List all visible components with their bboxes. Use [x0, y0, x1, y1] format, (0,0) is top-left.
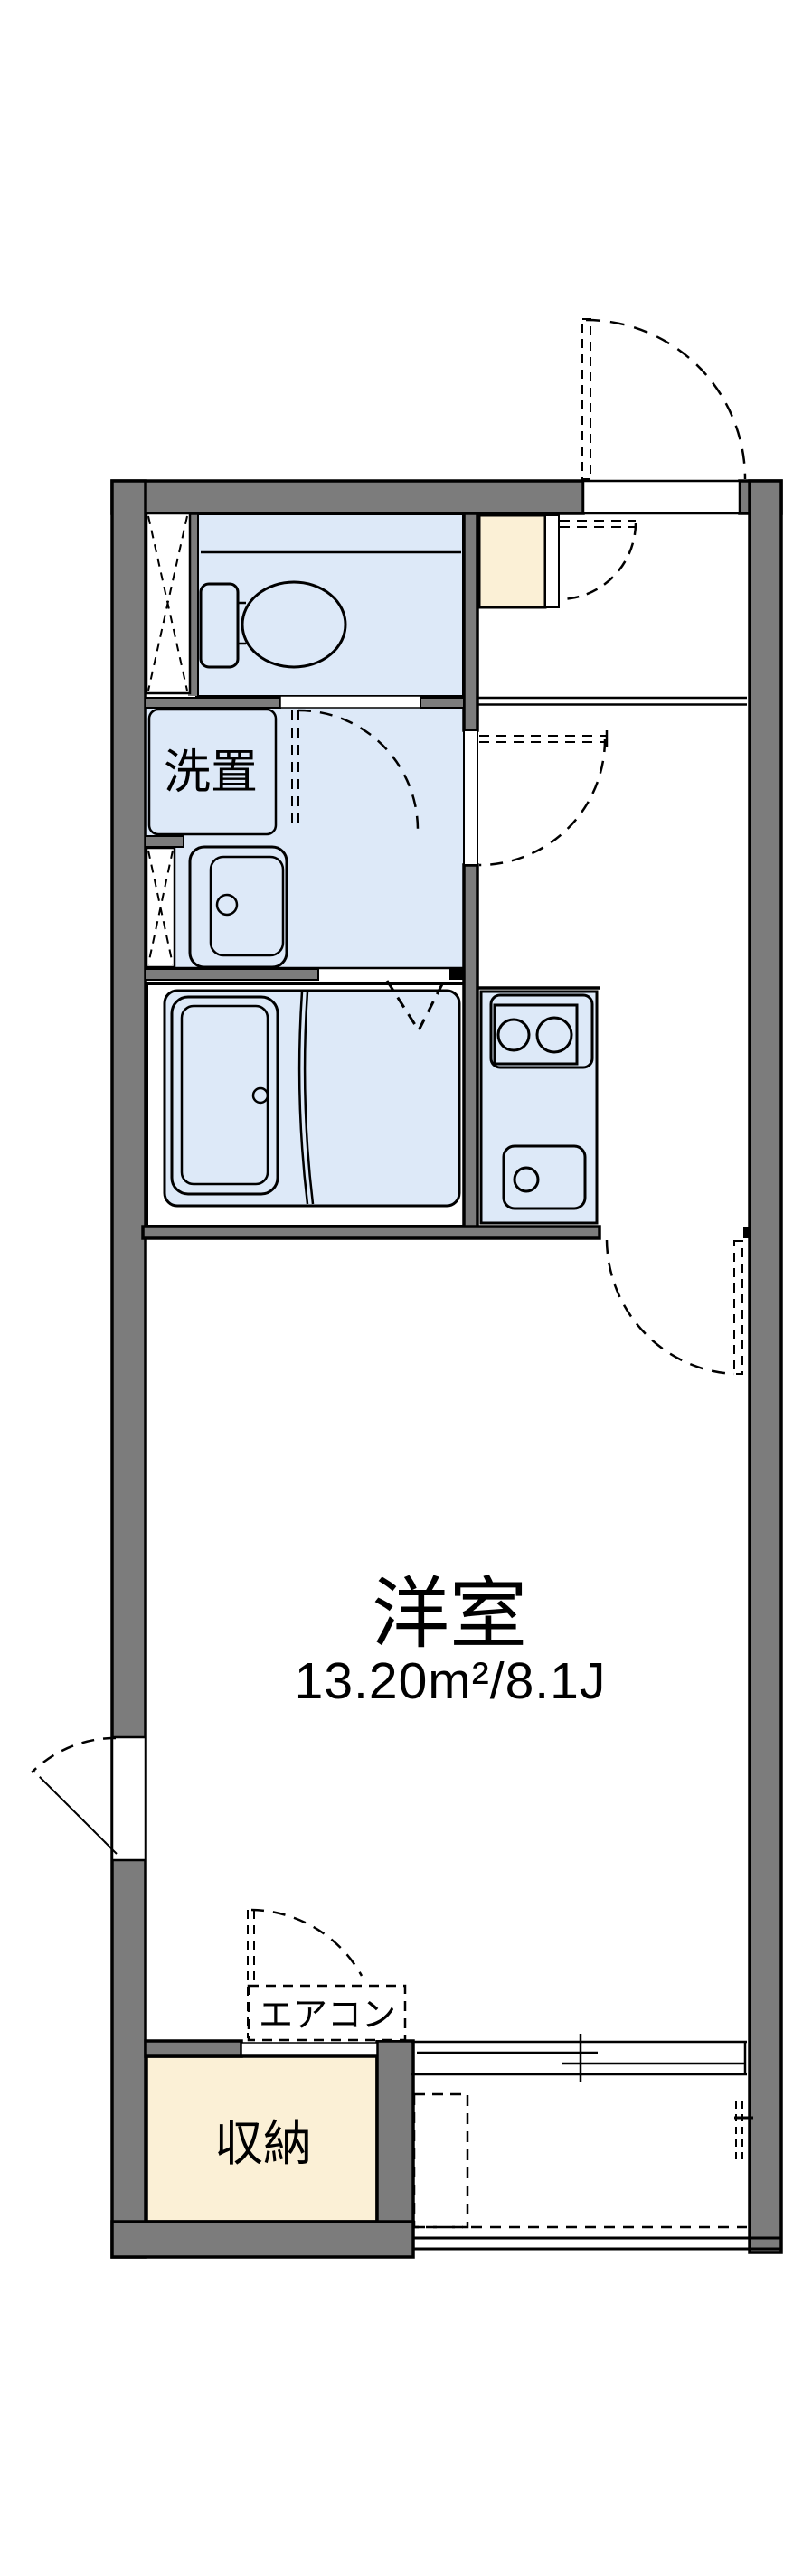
- wall-divider-lower: [464, 865, 477, 1229]
- wall-top: [112, 481, 583, 513]
- shoe-cabinet-door-panel: [545, 515, 559, 607]
- bathtub: [172, 997, 278, 1194]
- floorplan-page: 洗置 洋室 13.20m²/8.1J エアコン 収納: [0, 0, 812, 2576]
- wall-divider-upper: [464, 513, 477, 730]
- stove-burner: [498, 1020, 529, 1050]
- wall-room-divider: [143, 1227, 600, 1238]
- wall-closet-top: [146, 2041, 241, 2056]
- wall-right: [750, 481, 781, 2252]
- closet-door-opening: [241, 2043, 377, 2055]
- shoe-cabinet: [479, 515, 545, 607]
- wall-left: [112, 481, 146, 2257]
- floorplan-drawing: 洗置 洋室 13.20m²/8.1J エアコン 収納: [0, 0, 812, 2576]
- washer-label: 洗置: [164, 747, 258, 799]
- wall-closet-right: [377, 2041, 413, 2222]
- stove-burner: [537, 1018, 571, 1052]
- toilet-door-opening: [280, 696, 420, 708]
- wall-washer-stub: [146, 836, 184, 847]
- entrance-door-opening: [583, 481, 740, 513]
- wall-roomdoor-cap: [743, 1227, 750, 1238]
- wall-toilet-bottom-right: [420, 698, 464, 708]
- western-room-label: 洋室: [372, 1571, 527, 1658]
- western-room-area-label: 13.20m²/8.1J: [295, 1652, 607, 1710]
- toilet-tank: [201, 584, 238, 667]
- toilet-bowl: [242, 582, 345, 667]
- washroom-door-opening: [464, 730, 477, 865]
- wall-bottom-left: [112, 2222, 413, 2257]
- aircon-label: エアコン: [259, 1997, 396, 2035]
- wall-toilet-bottom-left: [146, 698, 280, 708]
- wall-washroom-bottom: [146, 969, 318, 980]
- storage-label: 収納: [214, 2117, 312, 2171]
- wall-bathdoor-corner: [449, 969, 465, 980]
- washbasin: [190, 847, 287, 967]
- side-door-opening: [112, 1737, 146, 1860]
